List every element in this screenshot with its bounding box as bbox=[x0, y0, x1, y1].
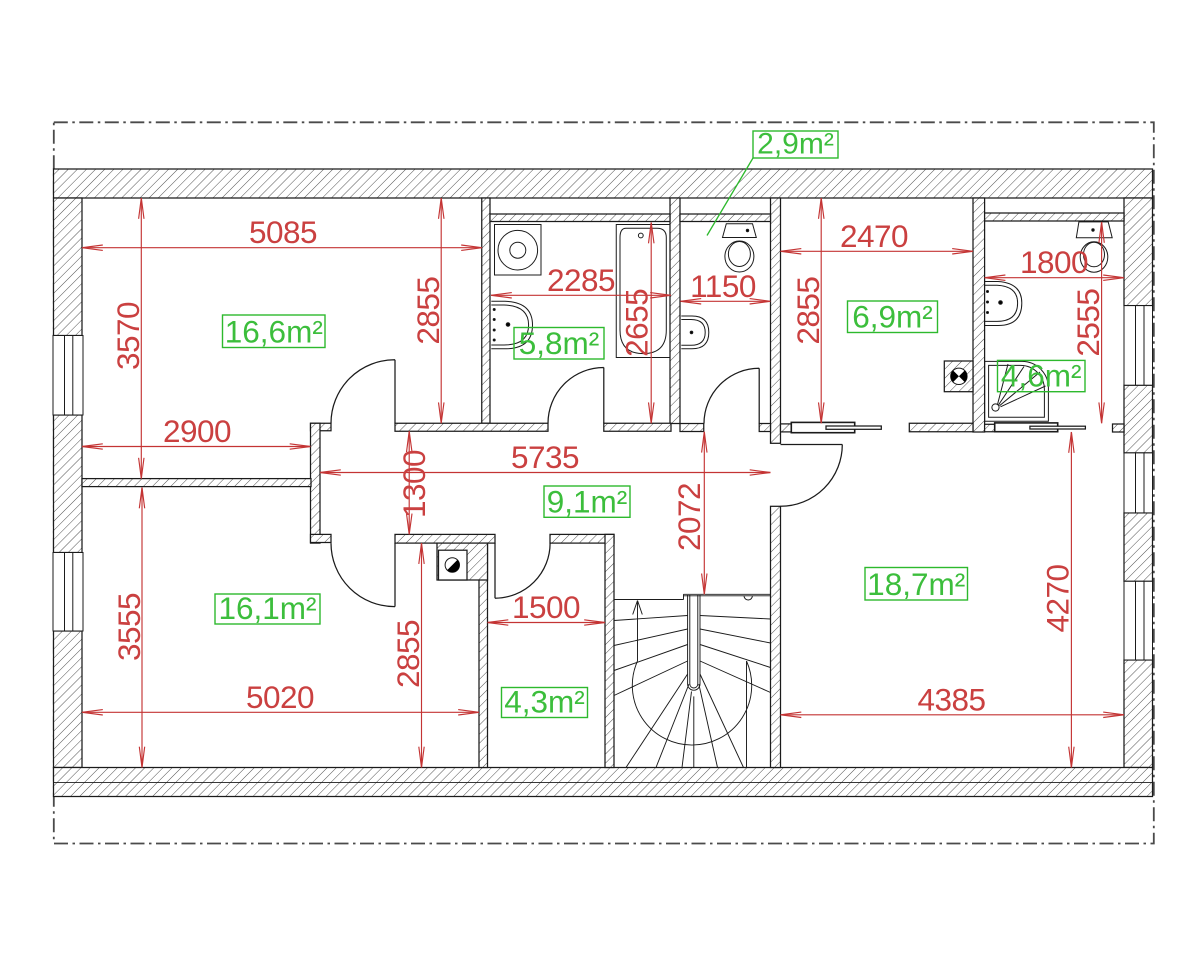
svg-text:16,1m²: 16,1m² bbox=[218, 590, 316, 626]
svg-text:2655: 2655 bbox=[619, 289, 655, 357]
svg-text:16,6m²: 16,6m² bbox=[225, 314, 323, 350]
svg-text:9,1m²: 9,1m² bbox=[547, 483, 628, 519]
svg-text:2855: 2855 bbox=[410, 277, 446, 345]
svg-text:18,7m²: 18,7m² bbox=[867, 566, 965, 602]
svg-text:6,9m²: 6,9m² bbox=[852, 299, 933, 335]
svg-text:4,6m²: 4,6m² bbox=[1001, 358, 1082, 394]
svg-text:2855: 2855 bbox=[390, 620, 426, 688]
svg-text:1300: 1300 bbox=[396, 450, 432, 518]
svg-text:2470: 2470 bbox=[840, 218, 908, 254]
svg-text:3570: 3570 bbox=[110, 302, 146, 370]
svg-text:1800: 1800 bbox=[1020, 244, 1088, 280]
svg-text:1500: 1500 bbox=[512, 589, 580, 625]
svg-text:1150: 1150 bbox=[690, 268, 756, 304]
svg-text:4385: 4385 bbox=[917, 681, 985, 717]
svg-text:2285: 2285 bbox=[547, 262, 615, 298]
svg-text:4270: 4270 bbox=[1040, 564, 1076, 632]
svg-text:3555: 3555 bbox=[111, 593, 147, 661]
svg-text:4,3m²: 4,3m² bbox=[504, 684, 585, 720]
svg-text:2555: 2555 bbox=[1070, 289, 1106, 357]
svg-text:2,9m²: 2,9m² bbox=[757, 128, 834, 161]
svg-text:2855: 2855 bbox=[790, 277, 826, 345]
svg-text:5085: 5085 bbox=[249, 214, 317, 250]
svg-text:5735: 5735 bbox=[511, 439, 579, 475]
svg-text:5020: 5020 bbox=[246, 679, 314, 715]
svg-text:2072: 2072 bbox=[671, 483, 707, 551]
svg-text:2900: 2900 bbox=[163, 413, 231, 449]
svg-text:5,8m²: 5,8m² bbox=[519, 325, 600, 361]
